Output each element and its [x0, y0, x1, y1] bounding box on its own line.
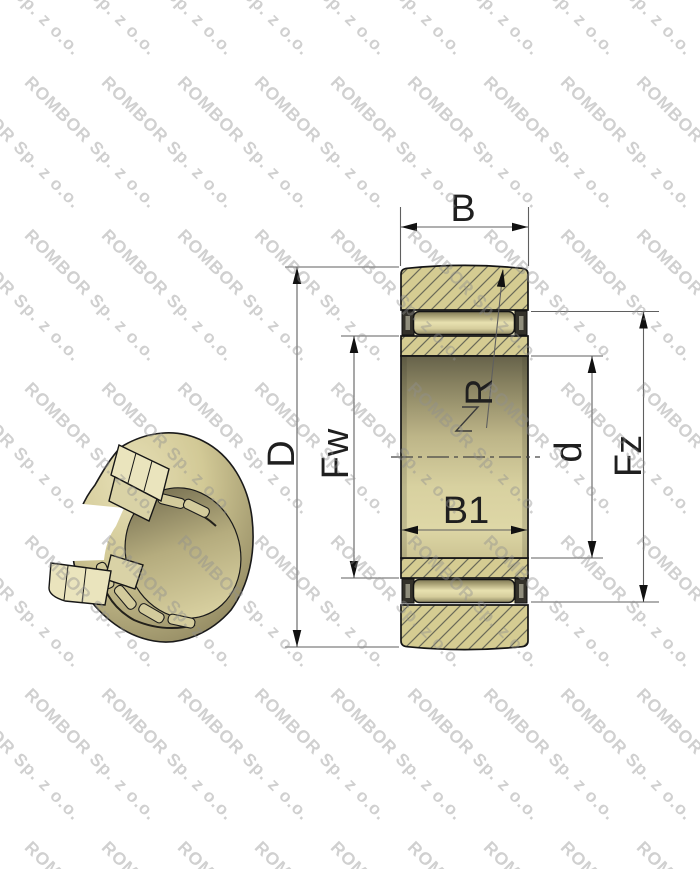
dim-label-Fz: Fz [608, 435, 650, 477]
dimension-B: B [401, 188, 529, 266]
dim-label-D: D [261, 440, 303, 467]
dim-label-d: d [548, 441, 590, 462]
dimension-Fw: Fw [315, 336, 399, 578]
roller-row-bottom [402, 579, 527, 603]
dim-label-R: R [459, 378, 501, 405]
inner-ring-flange-bottom [401, 558, 528, 578]
inner-ring-flange-top [401, 336, 528, 356]
dim-label-B1: B1 [443, 490, 489, 532]
drawing-sheet: B D Fw B1 R [0, 0, 700, 869]
dim-label-B: B [450, 188, 475, 230]
bearing-section-body [391, 265, 540, 649]
roller-row-top [402, 311, 527, 335]
dimension-d: d [531, 356, 603, 558]
needle-roller-top [414, 312, 515, 335]
outer-ring-top-section [401, 265, 528, 310]
needle-roller-bottom [414, 580, 515, 603]
dim-label-Fw: Fw [315, 428, 357, 479]
outer-ring-bottom-section [401, 605, 528, 650]
cross-section-drawing: B D Fw B1 R [0, 0, 700, 869]
